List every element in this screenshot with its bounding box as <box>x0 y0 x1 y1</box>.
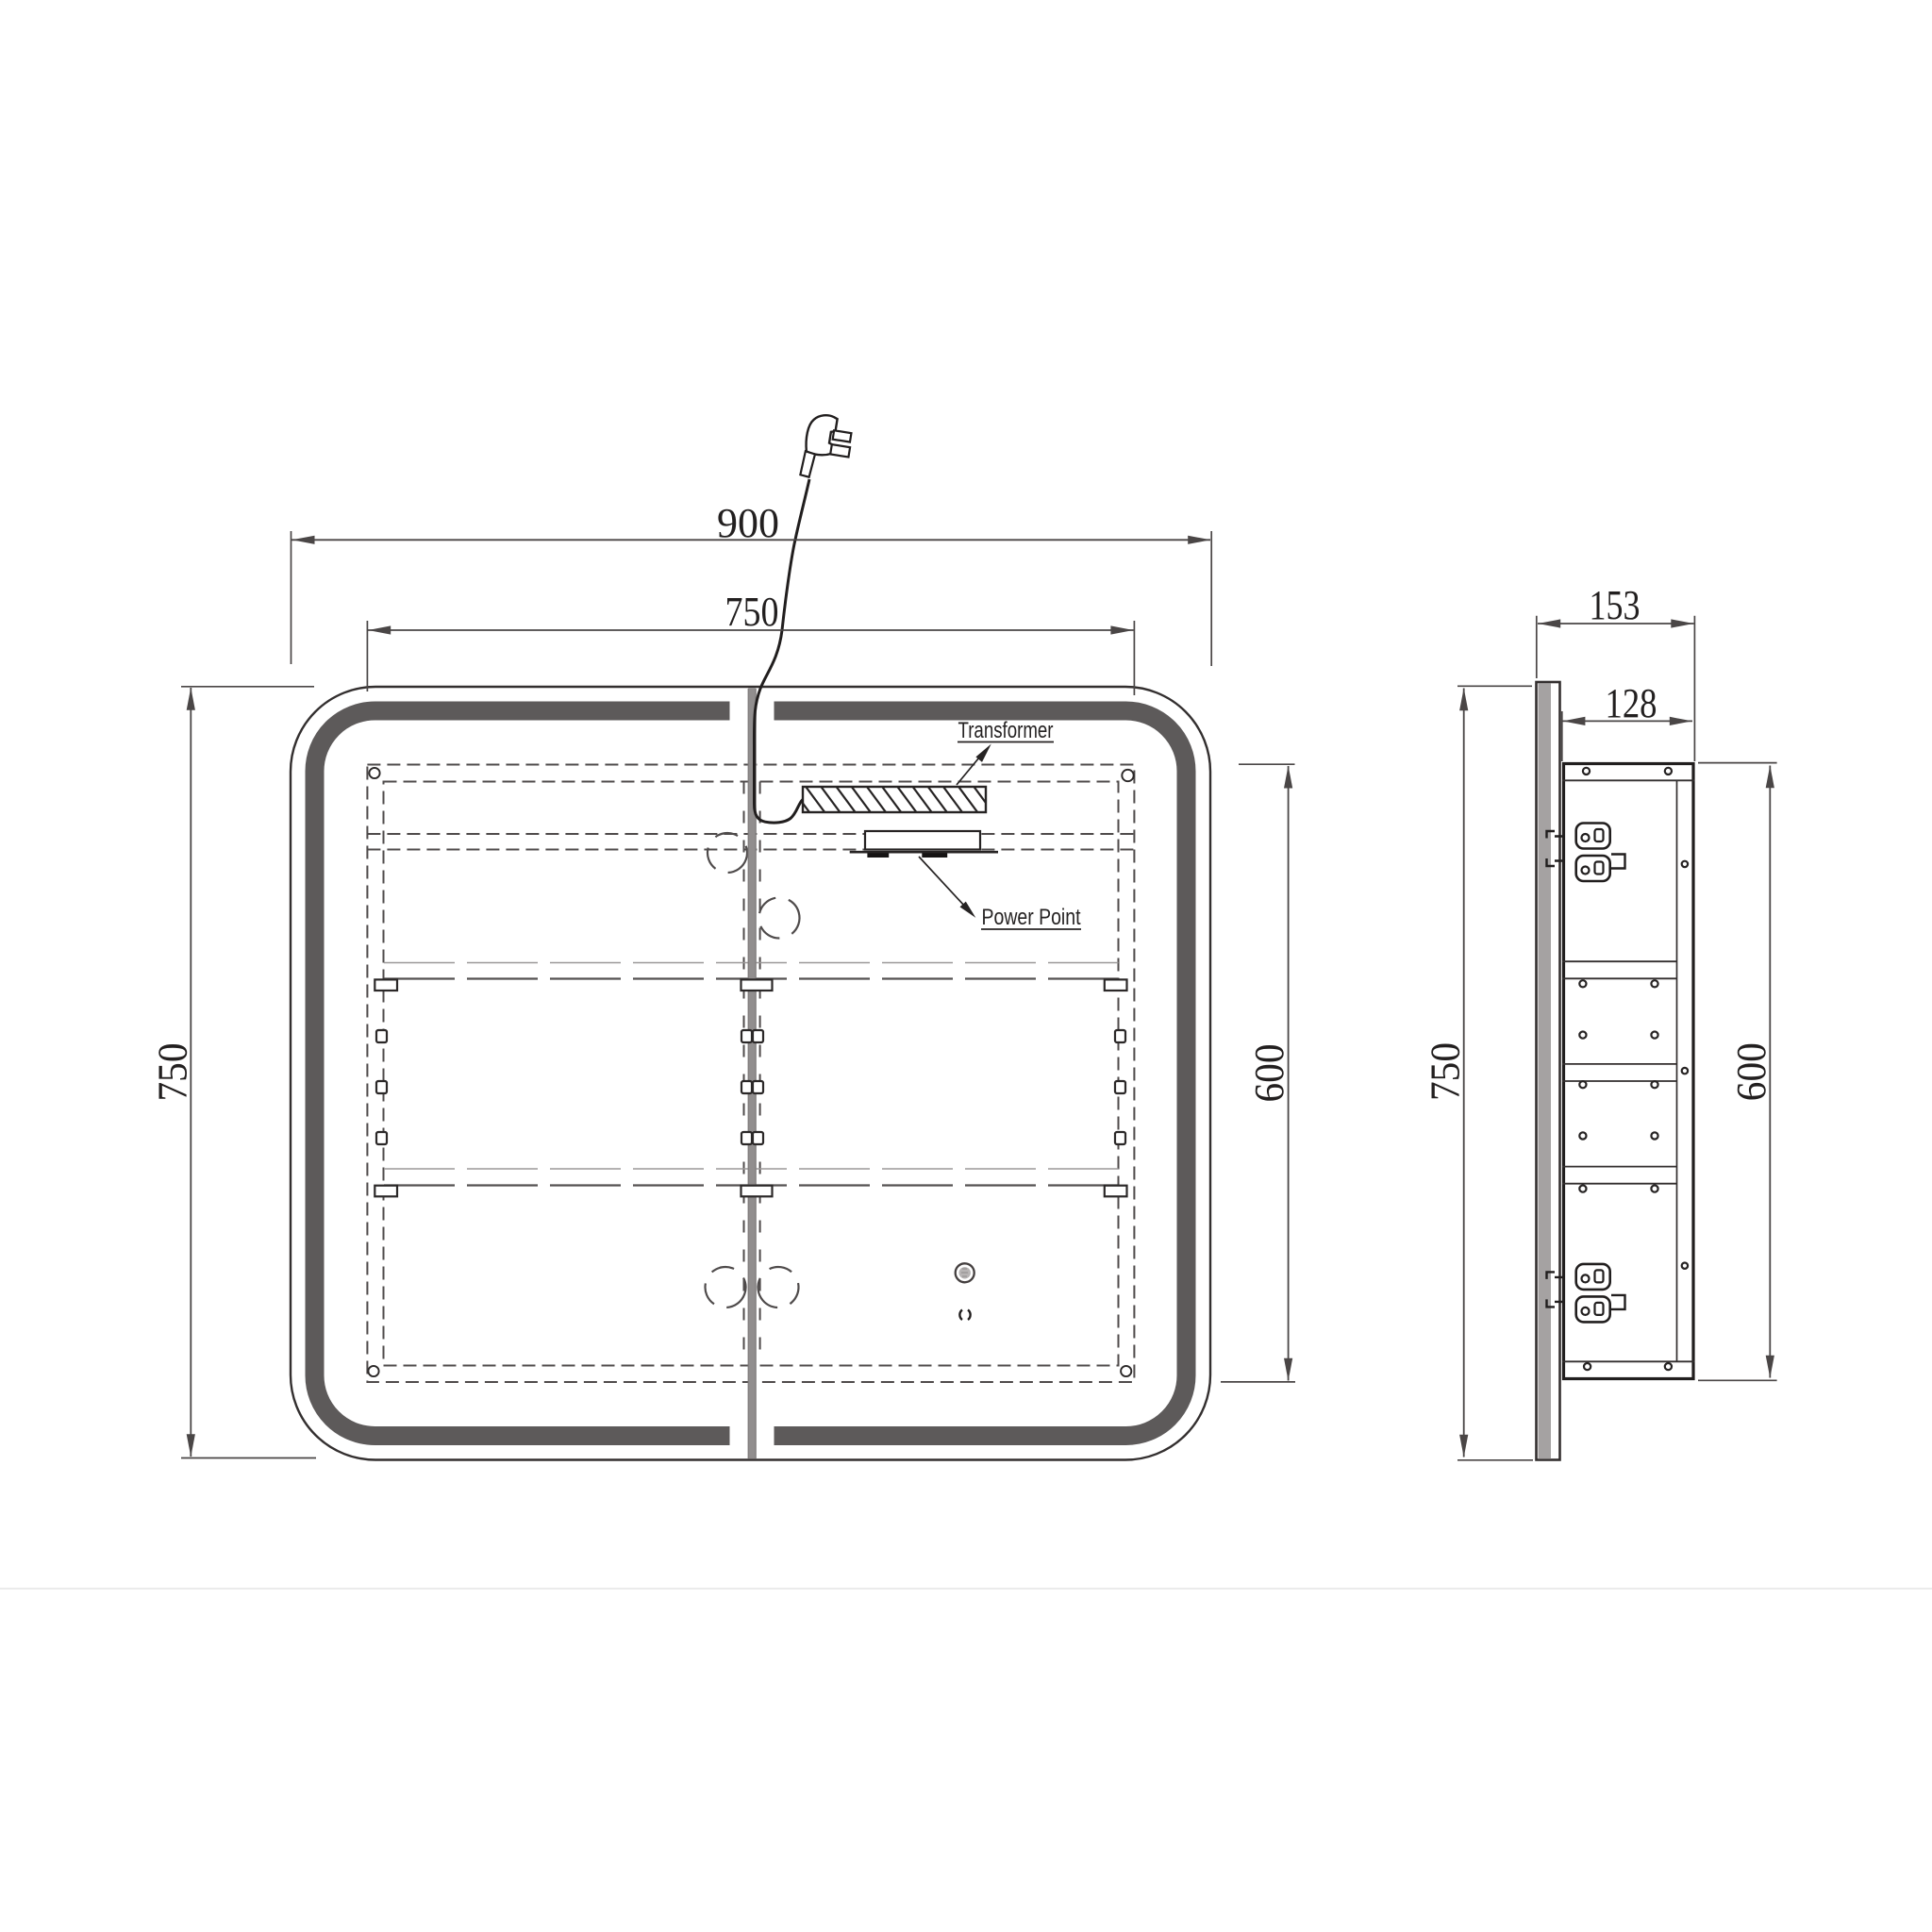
svg-text:128: 128 <box>1606 680 1657 726</box>
svg-text:600: 600 <box>1728 1042 1774 1101</box>
svg-text:900: 900 <box>717 500 779 546</box>
svg-text:Power Point: Power Point <box>982 905 1081 930</box>
svg-text:153: 153 <box>1590 582 1641 628</box>
svg-text:Transformer: Transformer <box>958 718 1054 743</box>
svg-text:750: 750 <box>150 1043 196 1102</box>
svg-text:750: 750 <box>1423 1042 1469 1101</box>
svg-text:600: 600 <box>1246 1044 1292 1103</box>
svg-text:750: 750 <box>725 589 779 635</box>
